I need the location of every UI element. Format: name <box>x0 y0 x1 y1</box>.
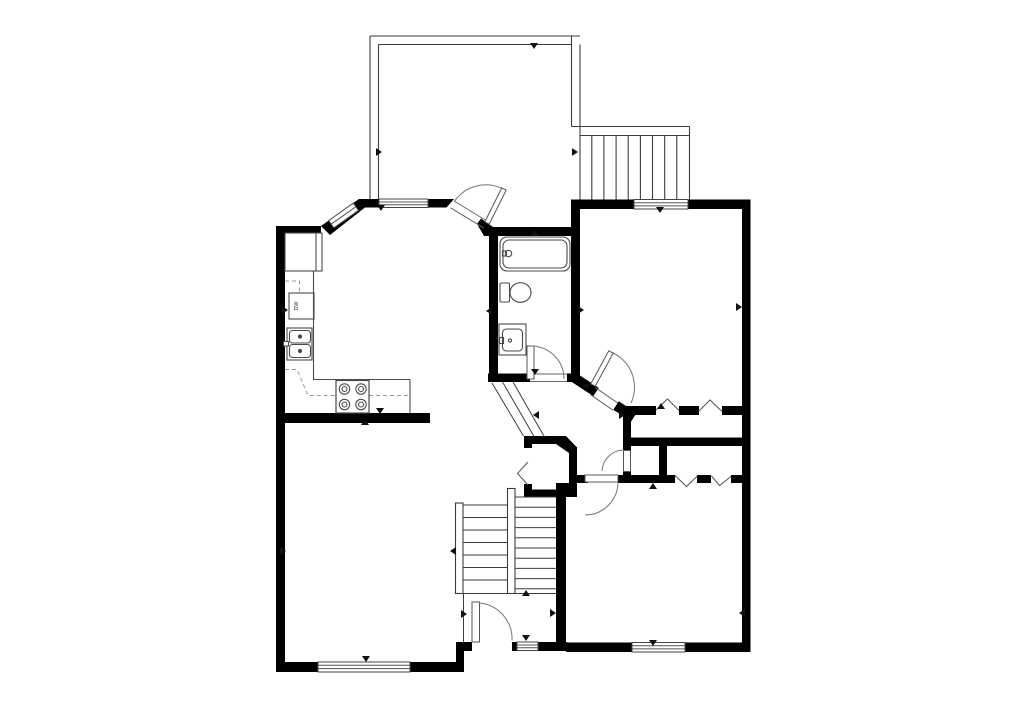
svg-text:DW: DW <box>294 301 300 311</box>
